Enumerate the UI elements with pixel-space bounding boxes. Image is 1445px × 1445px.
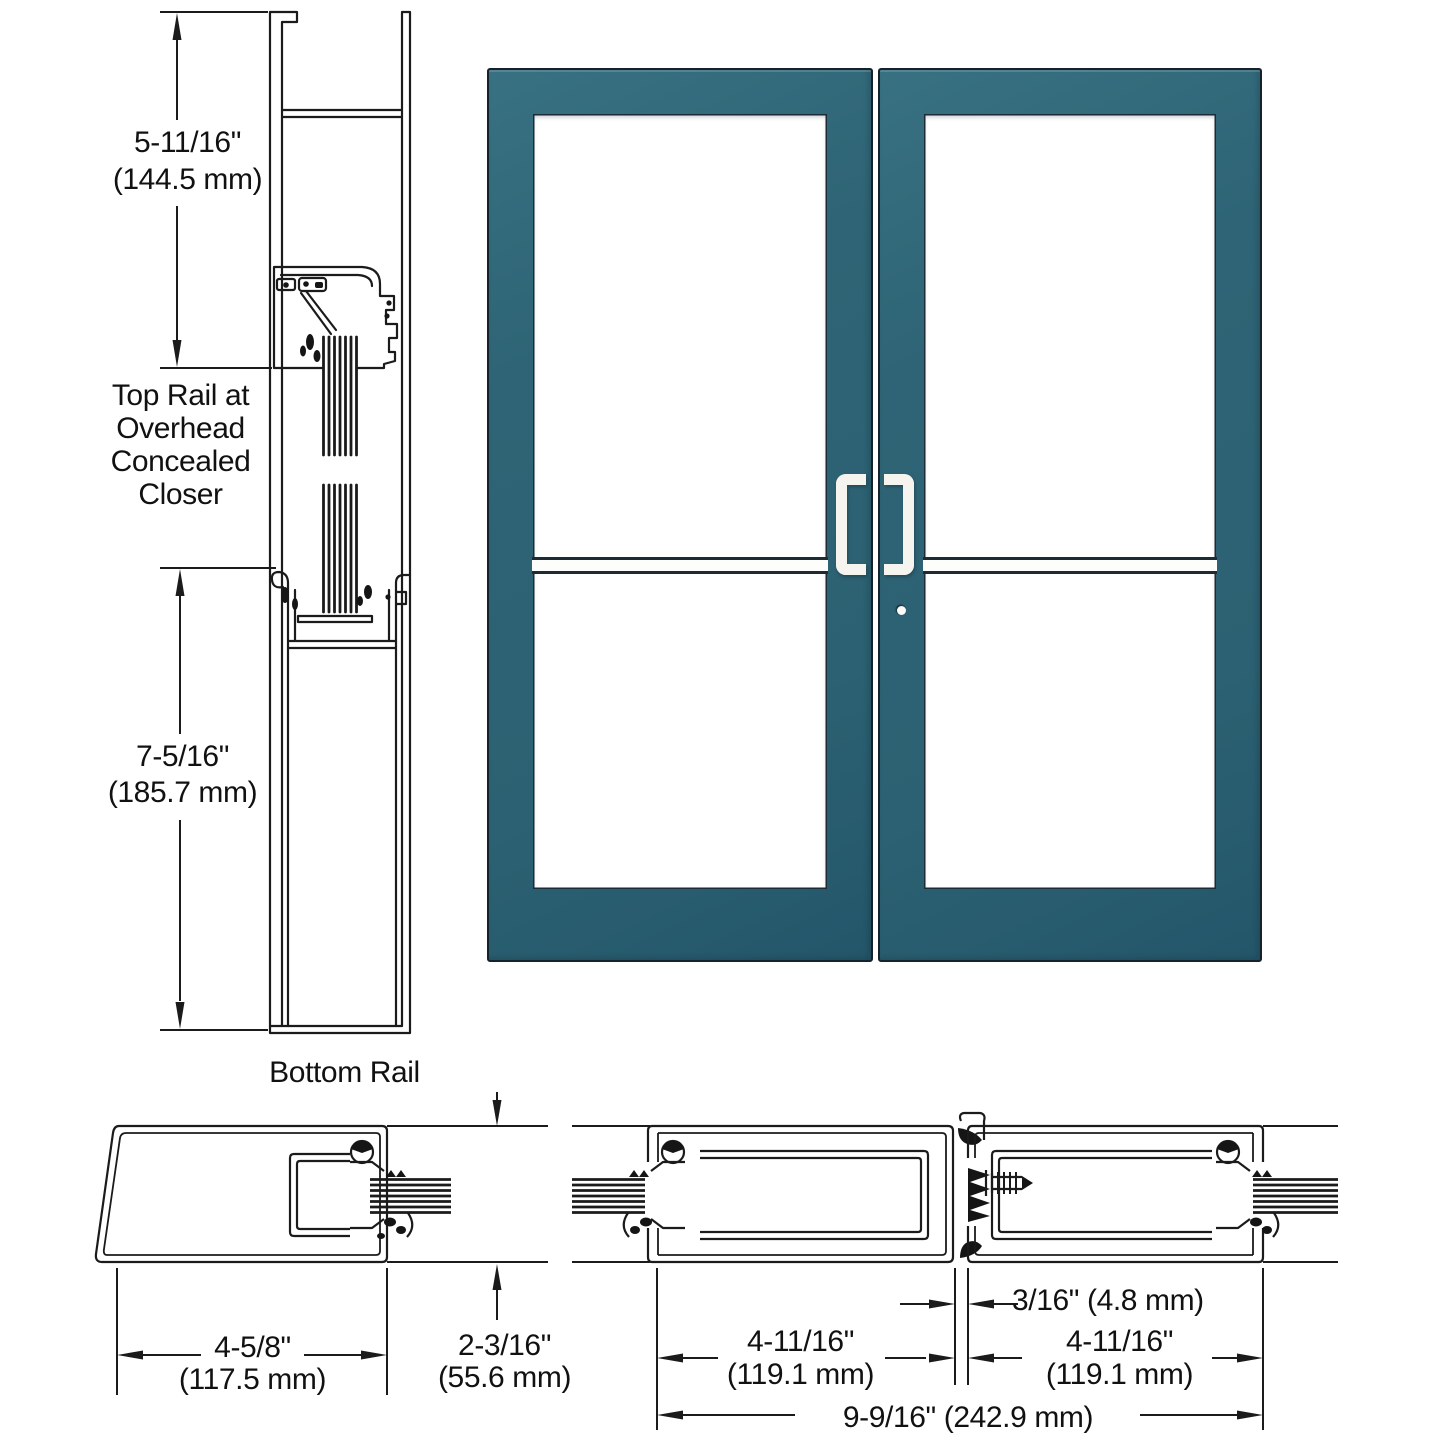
glazing-hatch-horizontal xyxy=(370,1180,1338,1213)
technical-drawing-canvas: 5-11/16" (144.5 mm) Top Rail at Overhead… xyxy=(0,0,1445,1445)
door-pair-elevation xyxy=(487,68,1262,962)
right-stile-width-inches: 4-11/16" xyxy=(987,1325,1252,1358)
door-leaf-left xyxy=(487,68,873,962)
top-rail-dim-inches: 5-11/16" xyxy=(45,126,330,159)
glazing-hatch-vertical xyxy=(324,337,357,612)
caption-line: Top Rail at xyxy=(38,379,323,412)
bottom-rail-dim-mm: (185.7 mm) xyxy=(40,776,325,809)
jamb-width-inches: 4-5/8" xyxy=(120,1331,385,1364)
meeting-stile-left-section xyxy=(572,1126,953,1262)
pull-handle-right-icon xyxy=(884,474,914,575)
mid-rail-right xyxy=(923,557,1217,574)
rail-depth-mm: (55.6 mm) xyxy=(372,1361,637,1394)
bottom-rail-caption: Bottom Rail xyxy=(212,1056,477,1089)
top-rail-dim-mm: (144.5 mm) xyxy=(45,163,330,196)
meeting-gap-dim: 3/16" (4.8 mm) xyxy=(1012,1284,1204,1317)
rail-depth-inches: 2-3/16" xyxy=(372,1329,637,1362)
meeting-stile-right-section xyxy=(968,1126,1338,1262)
pull-handle-left-icon xyxy=(836,474,866,575)
top-rail-caption: Top Rail at Overhead Concealed Closer xyxy=(38,379,323,511)
left-stile-width-mm: (119.1 mm) xyxy=(668,1358,933,1391)
meeting-edge-hardware xyxy=(958,1113,1033,1258)
cylinder-lock-icon xyxy=(897,606,906,615)
gasket-details xyxy=(283,281,391,362)
jamb-width-mm: (117.5 mm) xyxy=(120,1363,385,1396)
door-glass-left xyxy=(533,114,827,889)
left-stile-width-inches: 4-11/16" xyxy=(668,1325,933,1358)
bottom-rail-dim-inches: 7-5/16" xyxy=(40,740,325,773)
mid-rail-left xyxy=(532,557,828,574)
overall-width-dim: 9-9/16" (242.9 mm) xyxy=(758,1401,1178,1434)
caption-line: Closer xyxy=(38,478,323,511)
plan-sections-drawing xyxy=(96,1113,1338,1262)
jamb-section xyxy=(96,1126,548,1262)
caption-line: Overhead xyxy=(38,412,323,445)
right-stile-width-mm: (119.1 mm) xyxy=(987,1358,1252,1391)
door-glass-right xyxy=(924,114,1216,889)
caption-line: Concealed xyxy=(38,445,323,478)
door-leaf-right xyxy=(878,68,1262,962)
